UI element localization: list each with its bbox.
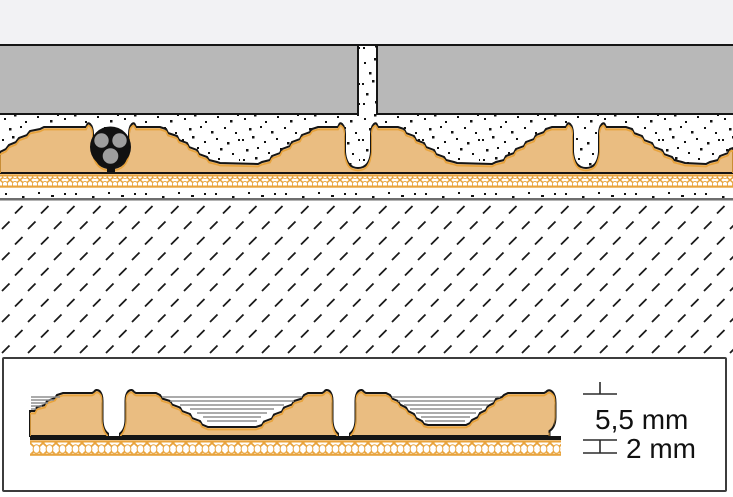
room-background — [0, 0, 733, 44]
conductor-icon — [103, 148, 119, 164]
dim-label-membrane-height: 5,5 mm — [595, 404, 688, 435]
dim-marker-5-5mm — [583, 382, 617, 394]
detail-membrane — [30, 390, 556, 439]
floor-assembly-cross-section-diagram: 5,5 mm 2 mm — [0, 0, 733, 497]
bonding-mortar-strip — [0, 188, 733, 198]
dim-marker-2mm — [583, 440, 617, 453]
conductor-icon — [94, 133, 108, 147]
tile-joint — [358, 45, 377, 115]
anchoring-fleece-layer — [0, 174, 733, 188]
detail-anchoring-fleece — [30, 440, 561, 456]
conductor-icon — [112, 133, 126, 147]
floor-tile-left — [0, 45, 358, 114]
membrane-detail-box: 5,5 mm 2 mm — [2, 357, 727, 492]
main-cross-section — [0, 0, 733, 357]
membrane-detail-drawing: 5,5 mm 2 mm — [4, 359, 725, 490]
floor-tile-right — [377, 45, 733, 114]
dim-label-base-thickness: 2 mm — [626, 433, 696, 464]
screed-substrate-layer — [0, 198, 733, 357]
